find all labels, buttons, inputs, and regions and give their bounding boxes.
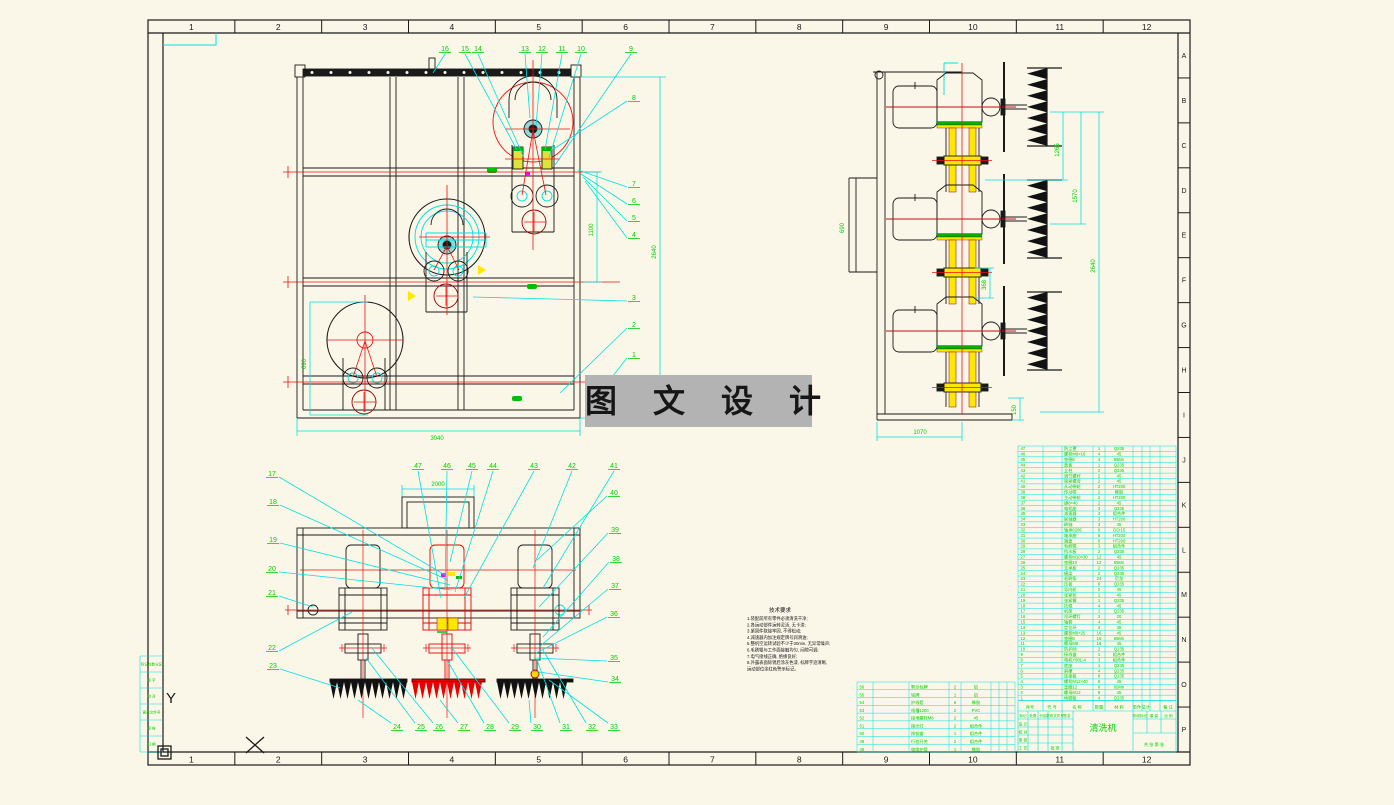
notes-line: 1.装配前所有零件必须清洗干净; <box>747 615 808 622</box>
callout-label: 15 <box>461 46 469 53</box>
bom-cell-no: 32 <box>1021 527 1026 532</box>
bom-cell-qty: 1 <box>1098 446 1101 451</box>
callout-label: 34 <box>611 676 619 683</box>
leader-line <box>583 177 627 221</box>
bom-cell-no: 31 <box>1021 533 1026 538</box>
bom-cell-qty: 3 <box>1098 511 1101 516</box>
ucs-x-axis-icon <box>246 737 264 753</box>
ruler-number-top: 10 <box>968 22 978 32</box>
bom-cell-qty: 6 <box>1098 527 1101 532</box>
bom-main-table: 47防尘罩1Q23546螺栓M6×1644545垫圈6465Mn44盖板1Q23… <box>1018 445 1176 701</box>
callout-label: 39 <box>611 527 619 534</box>
ruler-number-top: 5 <box>536 22 541 32</box>
bom-cell-qty: 2 <box>954 723 957 728</box>
bom-cell-no: 29 <box>1021 544 1026 549</box>
bom-cell-no: 7 <box>1021 663 1024 668</box>
bom-cell-mtl: 45 <box>1117 452 1122 457</box>
bom-cell-name: 按钮盒 <box>911 730 924 737</box>
dimension-texts: 3040264011006906901265157026403681501070… <box>302 143 1097 488</box>
bom-cell-mtl: Q235 <box>1114 462 1125 467</box>
bom-cell-qty: 16 <box>1097 630 1102 635</box>
bom-cell-qty: 6 <box>1098 538 1101 543</box>
bom-cell-no: 27 <box>1021 555 1026 560</box>
bom-cell-no: 8 <box>1021 657 1024 662</box>
ruler-number-top: 1 <box>189 22 194 32</box>
titleblock-field: 标记 <box>1019 713 1027 718</box>
revision-row: 审 核 <box>147 726 156 731</box>
ruler-number-top: 12 <box>1142 22 1152 32</box>
bom-cell-no: 54 <box>860 700 865 705</box>
callout-label: 7 <box>632 181 636 188</box>
brush-bristles <box>1027 180 1047 258</box>
dim-text: 368 <box>982 279 988 290</box>
bom-cell-qty: 2 <box>954 739 957 744</box>
bom-cell-no: 55 <box>860 692 865 697</box>
bom-cell-no: 3 <box>1021 685 1024 690</box>
bom-cell-mtl: HT200 <box>1113 495 1126 500</box>
bom-cell-mtl: Q235 <box>1114 549 1125 554</box>
bom-cell-mtl: 铝 <box>974 691 978 698</box>
bom-cell-no: 24 <box>1021 571 1026 576</box>
bom-cell-qty: 1 <box>954 747 957 752</box>
bom-cell-no: 23 <box>1021 576 1026 581</box>
titleblock-field: 批 准 <box>1051 746 1060 751</box>
bom-cell-qty: 12 <box>1097 555 1102 560</box>
bom-cell-qty: 2 <box>954 716 957 721</box>
callout-label: 45 <box>468 463 476 470</box>
callout-label: 5 <box>632 215 636 222</box>
titleblock-field: 阶段标记 <box>1133 713 1148 718</box>
callout-label: 37 <box>611 583 619 590</box>
bom-cell-mtl: Q235 <box>1114 468 1125 473</box>
border-letter: F <box>1182 278 1186 285</box>
bom-cell-qty: 3 <box>1098 544 1101 549</box>
bom-cell-qty: 1 <box>1098 598 1101 603</box>
dim-text: 3040 <box>430 436 444 442</box>
bom-cell-no: 48 <box>860 747 865 752</box>
dim-text: 2640 <box>1091 259 1097 273</box>
bom-cell-no: 28 <box>1021 549 1026 554</box>
callout-label: 38 <box>612 556 620 563</box>
bom-cell-no: 53 <box>860 708 865 713</box>
bom-cell-qty: 2 <box>1098 614 1101 619</box>
ruler-number-bottom: 4 <box>450 755 455 765</box>
leader-line <box>440 700 458 723</box>
callout-label: 2 <box>632 322 636 329</box>
border-letter: K <box>1182 502 1187 509</box>
ruler-number-bottom: 1 <box>189 755 194 765</box>
notes-title: 技术要求 <box>769 606 792 614</box>
bom-cell-no: 11 <box>1021 641 1026 646</box>
revision-row: 日 期 <box>147 742 156 747</box>
ruler-number-bottom: 10 <box>968 755 978 765</box>
bom-cell-mtl: 65Mn <box>1114 457 1125 462</box>
brush-bristles <box>1027 292 1047 370</box>
bom-cell-mtl: 45 <box>1117 555 1122 560</box>
ruler-number-bottom: 5 <box>536 755 541 765</box>
bom-cell-qty: 4 <box>1098 457 1101 462</box>
bom-cell-qty: 24 <box>1097 576 1102 581</box>
bom-cell-qty: 16 <box>1097 636 1102 641</box>
bom-cell-no: 35 <box>1021 511 1026 516</box>
border-letter: J <box>1182 457 1186 464</box>
leader-line <box>418 471 441 598</box>
callout-label: 46 <box>443 463 451 470</box>
bom-cell-no: 45 <box>1021 457 1026 462</box>
border-letter: E <box>1182 233 1187 240</box>
callout-label: 28 <box>486 724 494 731</box>
callout-label: 22 <box>268 645 276 652</box>
ruler-number-bottom: 12 <box>1142 755 1152 765</box>
bom-cell-mtl: 65Mn <box>1114 560 1125 565</box>
leader-line <box>366 658 415 723</box>
leader-line <box>525 54 530 118</box>
bom-cell-qty: 2 <box>1098 647 1101 652</box>
leader-line <box>552 101 627 150</box>
dim-text: 1265 <box>1055 143 1061 157</box>
bom-cell-no: 42 <box>1021 473 1026 478</box>
border-letter: H <box>1181 368 1186 375</box>
cad-sheet: 123456789101112123456789101112ABCDEFGHIJ… <box>0 0 1394 805</box>
side-view <box>849 62 1104 441</box>
leader-line <box>464 471 534 598</box>
bom-cell-mtl: 45 <box>1117 587 1122 592</box>
bom-cell-qty: 8 <box>1098 679 1101 684</box>
titleblock-field: 设 计 <box>1019 722 1028 727</box>
callout-label: 42 <box>568 463 576 470</box>
bom-cell-no: 15 <box>1021 620 1026 625</box>
bom-header-cell: 数量 <box>1095 704 1103 711</box>
bom-cell-mtl: Q235 <box>1114 506 1125 511</box>
bom-cell-no: 21 <box>1021 587 1026 592</box>
bom-cell-no: 30 <box>1021 538 1026 543</box>
ruler-number-bottom: 9 <box>884 755 889 765</box>
bom-header-cell: 名 称 <box>1072 704 1082 711</box>
bom-cell-name: 护线套 <box>911 699 924 706</box>
notes-line: 3.紧固件联接牢固, 不得松动; <box>747 628 801 635</box>
titleblock-field: 处数 <box>1029 713 1037 718</box>
callout-label: 32 <box>588 724 596 731</box>
ruler-number-bottom: 8 <box>797 755 802 765</box>
bom-cell-mtl: Q235 <box>1114 582 1125 587</box>
dim-text: 2000 <box>431 482 445 488</box>
bom-header-cell: 序号 <box>1026 704 1034 711</box>
leader-line <box>473 297 627 301</box>
leader-line <box>534 658 607 661</box>
bom-cell-mtl: 铝 <box>974 684 978 691</box>
border-letter: O <box>1181 682 1187 689</box>
bom-header-cell: 备 注 <box>1163 704 1173 711</box>
leader-line <box>545 54 562 150</box>
bom-cell-qty: 16 <box>1097 641 1102 646</box>
leader-line <box>536 617 607 653</box>
bom-cell-mtl: Q235 <box>1114 609 1125 614</box>
bom-cell-no: 5 <box>1021 674 1024 679</box>
bom-cell-mtl: 45 <box>1117 603 1122 608</box>
bom-cell-qty: 4 <box>1098 668 1101 673</box>
bom-cell-qty: 1 <box>1098 609 1101 614</box>
callout-label: 20 <box>268 566 276 573</box>
notes-line: 运动部位涂红色警示标记。 <box>747 665 799 672</box>
dim-text: 1570 <box>1073 189 1079 203</box>
bom-cell-mtl: Q235 <box>1114 695 1125 700</box>
bom-cell-qty: 2 <box>1098 473 1101 478</box>
bom-cell-name: 接地螺栓M8 <box>911 715 934 722</box>
callout-label: 23 <box>269 663 277 670</box>
notes-line: 8.外露表面除锈后涂灰色漆, 标牌字迹清晰, <box>747 659 827 666</box>
callout-label: 47 <box>414 463 422 470</box>
bom-cell-mtl: 45 <box>1117 522 1122 527</box>
bom-cell-qty: 2 <box>1098 565 1101 570</box>
callout-label: 18 <box>269 499 277 506</box>
bom-cell-mtl: 45 <box>1117 592 1122 597</box>
titleblock-field: 校 对 <box>1019 730 1028 735</box>
titleblock-field: 工 艺 <box>1019 746 1028 751</box>
bom-cell-mtl: 65Mn <box>1114 685 1125 690</box>
watermark: 图 文 设 计 <box>585 375 812 427</box>
bom-aux-table: 56警示标牌2铝55铭牌1铝54护线套6橡胶53线槽12002PVC52接地螺栓… <box>857 682 1015 753</box>
side-dim-lines <box>877 112 1104 441</box>
callout-label: 27 <box>460 724 468 731</box>
notes-line: 6.毛刷辊与工作面接触均匀, 间隙可调; <box>747 647 819 654</box>
border-letter: I <box>1183 412 1185 419</box>
bom-cell-mtl: HT200 <box>1113 538 1126 543</box>
bom-cell-no: 46 <box>1021 452 1026 457</box>
bom-cell-no: 50 <box>860 731 865 736</box>
titleblock-field: 更改文件号 <box>1046 713 1064 718</box>
callout-label: 26 <box>435 724 443 731</box>
bom-cell-mtl: Q235 <box>1114 565 1125 570</box>
bom-cell-qty: 4 <box>1098 603 1101 608</box>
title-block: 序号代 号名 称数量材 料单件总计备 注标记处数分区更改文件号签名设 计校 对审… <box>1018 701 1176 752</box>
bom-cell-qty: 12 <box>1097 560 1102 565</box>
ruler-number-top: 11 <box>1055 22 1064 32</box>
leader-line <box>543 471 614 588</box>
bom-cell-qty: 8 <box>1098 685 1101 690</box>
callout-label: 14 <box>474 46 482 53</box>
bottom-view <box>285 485 592 718</box>
bom-cell-mtl: 组合件 <box>970 738 983 745</box>
callout-label: 9 <box>629 46 633 53</box>
dim-text: 690 <box>840 222 846 233</box>
bom-cell-no: 51 <box>860 723 865 728</box>
brush-bristles <box>1027 68 1047 146</box>
bom-cell-mtl: 组合件 <box>970 722 983 729</box>
bom-cell-name: 线槽1200 <box>911 707 929 714</box>
dim-text: 1100 <box>589 223 595 237</box>
bom-header-cell: 材 料 <box>1114 704 1124 711</box>
bom-cell-qty: 8 <box>1098 674 1101 679</box>
callout-label: 30 <box>533 724 541 731</box>
bom-cell-mtl: PVC <box>972 708 981 713</box>
bom-cell-no: 20 <box>1021 592 1026 597</box>
bom-cell-no: 19 <box>1021 598 1026 603</box>
callout-label: 35 <box>610 655 618 662</box>
bom-cell-no: 44 <box>1021 462 1026 467</box>
bom-cell-no: 52 <box>860 716 865 721</box>
bom-cell-mtl: 组合件 <box>970 730 983 737</box>
bom-cell-qty: 1 <box>1098 652 1101 657</box>
bom-cell-qty: 3 <box>1098 657 1101 662</box>
bom-cell-mtl: 45 <box>1117 500 1122 505</box>
bom-cell-qty: 6 <box>1098 582 1101 587</box>
bom-cell-mtl: 20 <box>1117 614 1122 619</box>
side-assembly <box>886 62 1062 192</box>
revision-row: 签 字 <box>147 678 156 683</box>
border-letter: P <box>1182 727 1187 734</box>
callout-label: 41 <box>610 463 618 470</box>
border-letter: M <box>1181 592 1187 599</box>
bom-cell-no: 14 <box>1021 625 1026 630</box>
ruler-number-top: 9 <box>884 22 889 32</box>
bom-cell-name: 电缆护管 <box>911 746 928 753</box>
bom-cell-qty: 2 <box>1098 468 1101 473</box>
bom-cell-qty: 3 <box>1098 506 1101 511</box>
callout-label: 40 <box>610 490 618 497</box>
ruler-number-top: 8 <box>797 22 802 32</box>
dim-text: 2640 <box>652 245 658 259</box>
callout-label: 33 <box>610 724 618 731</box>
bom-cell-no: 1 <box>1021 695 1024 700</box>
centerlines <box>283 60 620 412</box>
bom-cell-qty: 2 <box>954 685 957 690</box>
bom-cell-qty: 4 <box>1098 625 1101 630</box>
bom-cell-no: 10 <box>1021 647 1026 652</box>
bom-cell-name: 指示灯 <box>911 722 924 729</box>
bom-cell-no: 41 <box>1021 479 1026 484</box>
bom-cell-qty: 2 <box>1098 479 1101 484</box>
bom-cell-no: 56 <box>860 685 865 690</box>
bom-cell-qty: 1 <box>954 731 957 736</box>
drawing-title: 清洗机 <box>1089 722 1116 733</box>
ucs-icon: Y <box>158 690 264 759</box>
bom-cell-no: 12 <box>1021 636 1026 641</box>
callout-label: 8 <box>632 95 636 102</box>
ruler-number-top: 2 <box>276 22 281 32</box>
callout-label: 17 <box>268 471 276 478</box>
bom-cell-mtl: 45 <box>1117 641 1122 646</box>
border-letter: G <box>1181 323 1186 330</box>
bom-cell-qty: 8 <box>1098 690 1101 695</box>
bom-cell-mtl: 65Mn <box>1114 636 1125 641</box>
bom-cell-no: 33 <box>1021 522 1026 527</box>
border-letter: A <box>1182 53 1187 60</box>
callout-label: 6 <box>632 198 636 205</box>
callout-label: 21 <box>268 590 276 597</box>
callout-label: 11 <box>558 46 565 53</box>
revision-table: 标记处数分区签 字校 对更改文件号审 核日 期 <box>140 656 163 752</box>
bom-cell-mtl: 橡胶 <box>972 699 980 706</box>
bom-cell-mtl: Q235 <box>1114 668 1125 673</box>
leader-line <box>581 174 627 204</box>
dim-text: 150 <box>1012 404 1018 415</box>
bom-cell-mtl: HT200 <box>1113 533 1126 538</box>
revision-row: 校 对 <box>147 694 156 699</box>
bom-cell-qty: 2 <box>1098 484 1101 489</box>
leader-line <box>279 572 452 590</box>
dim-text: 1070 <box>913 430 927 436</box>
bom-cell-no: 18 <box>1021 603 1026 608</box>
bom-cell-qty: 2 <box>1098 587 1101 592</box>
bom-cell-mtl: Q235 <box>1114 674 1125 679</box>
bom-cell-no: 47 <box>1021 446 1026 451</box>
bom-cell-qty: 1 <box>1098 462 1101 467</box>
bom-cell-no: 13 <box>1021 630 1026 635</box>
revision-row: 更改文件号 <box>143 710 161 715</box>
bom-cell-mtl: 45 <box>1117 690 1122 695</box>
ruler-number-top: 4 <box>450 22 455 32</box>
notes-line: 5.整机空运转试验不少于30min, 无异常噪声; <box>747 640 830 647</box>
callout-label: 1 <box>632 352 636 359</box>
callout-label: 29 <box>511 724 519 731</box>
titleblock-field: 比 例 <box>1164 713 1173 718</box>
bom-cell-qty: 2 <box>1098 500 1101 505</box>
bom-cell-mtl: HT200 <box>1113 484 1126 489</box>
leader-line <box>280 669 340 688</box>
border-letter: D <box>1181 188 1186 195</box>
bom-cell-no: 25 <box>1021 565 1026 570</box>
bom-cell-qty: 6 <box>954 700 957 705</box>
revision-row: 标记处数分区 <box>141 662 163 667</box>
notes-line: 4.减速器内加注规定牌号润滑油; <box>747 634 808 641</box>
bom-cell-mtl: 45 <box>1117 679 1122 684</box>
bom-header-cell: 代 号 <box>1047 704 1057 711</box>
bom-cell-name: 铭牌 <box>911 691 919 698</box>
ruler-number-top: 7 <box>710 22 715 32</box>
bom-cell-no: 17 <box>1021 609 1026 614</box>
bom-cell-mtl: Q235 <box>1114 663 1125 668</box>
notes-line: 2.各运动部件运转灵活, 无卡滞; <box>747 621 806 628</box>
bom-cell-no: 39 <box>1021 490 1026 495</box>
bom-cell-no: 34 <box>1021 517 1026 522</box>
border-letter: B <box>1182 98 1187 105</box>
bom-cell-mtl: Q235 <box>1114 647 1125 652</box>
bom-cell-no: 9 <box>1021 652 1024 657</box>
leader-line <box>578 170 627 187</box>
leader-line <box>536 54 542 126</box>
ucs-y-label: Y <box>166 690 176 707</box>
bom-cell-qty: 3 <box>1098 522 1101 527</box>
bom-cell-qty: 2 <box>1098 571 1101 576</box>
callout-label: 19 <box>269 537 277 544</box>
titleblock-field: 审 核 <box>1019 738 1028 743</box>
border-letter: L <box>1182 547 1186 554</box>
bom-cell-qty: 3 <box>1098 517 1101 522</box>
ruler-number-bottom: 6 <box>623 755 628 765</box>
ruler-number-bottom: 2 <box>276 755 281 765</box>
bom-cell-no: 49 <box>860 739 865 744</box>
leader-line <box>279 477 445 575</box>
bom-cell-qty: 4 <box>1098 695 1101 700</box>
bom-cell-mtl: GCr15 <box>1113 527 1126 532</box>
bom-cell-mtl: 45 <box>1117 630 1122 635</box>
bom-cell-mtl: 45 <box>1117 620 1122 625</box>
bom-cell-mtl: HT200 <box>1113 517 1126 522</box>
tech-notes: 技术要求1.装配前所有零件必须清洗干净;2.各运动部件运转灵活, 无卡滞;3.紧… <box>747 606 830 672</box>
top-rail <box>303 69 571 76</box>
callout-label: 3 <box>632 295 636 302</box>
ruler-number-bottom: 7 <box>710 755 715 765</box>
leader-line <box>279 596 313 607</box>
callout-label: 43 <box>530 463 538 470</box>
callout-label: 44 <box>489 463 497 470</box>
bom-cell-qty: 1 <box>954 692 957 697</box>
dim-text: 690 <box>302 358 308 369</box>
leader-line <box>533 471 572 568</box>
leader-line <box>280 543 450 585</box>
titleblock-field: 重 量 <box>1150 713 1159 718</box>
bom-cell-no: 16 <box>1021 614 1026 619</box>
